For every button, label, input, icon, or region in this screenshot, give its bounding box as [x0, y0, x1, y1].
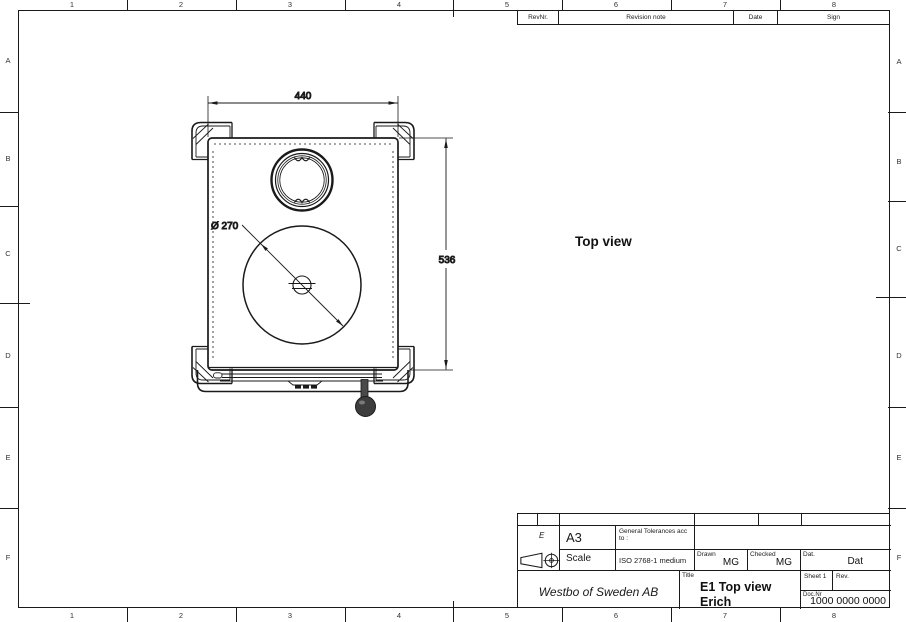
- door-knob: [356, 397, 376, 417]
- diameter-dimension-label: Ø 270: [211, 221, 239, 232]
- grid-row-label: F: [1, 553, 15, 563]
- title-cell: Title E1 Top view Erich: [680, 571, 801, 609]
- grid-tick: [127, 608, 128, 622]
- top-view-drawing: Ø 270 440 536: [180, 85, 470, 430]
- revision-sign-header: Sign: [778, 11, 889, 24]
- title-block: E A3 General Tolerances acc to : Scale I…: [517, 513, 890, 608]
- grid-tick: [0, 407, 18, 408]
- grid-row-label: F: [892, 553, 906, 563]
- grid-row-label: C: [892, 244, 906, 254]
- grid-row-label: D: [1, 351, 15, 361]
- ring-clip-bottom: [295, 199, 310, 202]
- docnr-value: 1000 0000 0000: [810, 595, 886, 607]
- grid-col-label: 1: [62, 611, 82, 621]
- grid-col-label: 5: [497, 0, 517, 10]
- grid-col-label: 2: [171, 0, 191, 10]
- tolerance-value: ISO 2768-1 medium: [616, 550, 695, 571]
- revision-date-header: Date: [734, 11, 778, 24]
- title-label: Title: [680, 571, 800, 580]
- depth-dimension-label: 536: [439, 255, 456, 266]
- checked-cell: Checked MG: [748, 550, 801, 571]
- grid-row-label: B: [1, 154, 15, 164]
- grid-tick: [236, 0, 237, 10]
- grid-tick: [780, 0, 781, 10]
- view-label: Top view: [575, 234, 695, 249]
- date-cell: Dat. Dat: [801, 550, 891, 571]
- first-angle-projection-icon: [518, 548, 562, 571]
- company-name: Westbo of Sweden AB: [518, 571, 680, 609]
- date-value: Dat: [847, 556, 863, 567]
- grid-tick: [671, 0, 672, 10]
- grid-col-label: 4: [389, 0, 409, 10]
- width-dimension-label: 440: [295, 91, 312, 102]
- grid-tick: [345, 0, 346, 10]
- grid-center-tick: [453, 601, 454, 622]
- projection-cell: E: [518, 526, 560, 571]
- grid-tick: [780, 608, 781, 622]
- grid-row-label: E: [892, 453, 906, 463]
- grid-col-label: 7: [715, 611, 735, 621]
- grid-center-tick: [453, 0, 454, 17]
- grid-row-label: B: [892, 157, 906, 167]
- grid-col-label: 5: [497, 611, 517, 621]
- grid-col-label: 3: [280, 611, 300, 621]
- drawn-cell: Drawn MG: [695, 550, 748, 571]
- titleblock-strip-cell: [518, 514, 538, 526]
- grid-col-label: 3: [280, 0, 300, 10]
- grid-col-label: 2: [171, 611, 191, 621]
- grid-col-label: 8: [824, 0, 844, 10]
- grid-row-label: A: [892, 57, 906, 67]
- rev-label: Rev.: [833, 571, 891, 591]
- grid-col-label: 4: [389, 611, 409, 621]
- grid-row-label: D: [892, 351, 906, 361]
- grid-center-tick: [0, 303, 30, 304]
- docnr-cell: Doc.Nr 1000 0000 0000: [801, 591, 891, 609]
- grid-tick: [888, 201, 906, 202]
- grid-tick: [127, 0, 128, 10]
- revision-note-header: Revision note: [559, 11, 734, 24]
- grid-row-label: A: [1, 56, 15, 66]
- scale-label: Scale: [560, 550, 616, 571]
- drawing-subtitle: Erich: [700, 595, 800, 610]
- zone-label: E: [539, 531, 544, 540]
- titleblock-strip-cell: [560, 514, 695, 526]
- checked-value: MG: [776, 557, 792, 568]
- drawing-sheet: 1 2 3 4 5 6 7 8 1 2 3 4 5 6 7 8 A B C D …: [0, 0, 906, 622]
- grid-tick: [888, 508, 906, 509]
- tolerance-label: General Tolerances acc to :: [616, 526, 695, 550]
- checked-label: Checked: [748, 550, 800, 559]
- grid-col-label: 6: [606, 0, 626, 10]
- grid-tick: [562, 608, 563, 622]
- grid-col-label: 8: [824, 611, 844, 621]
- drawing-title: E1 Top view: [700, 580, 800, 595]
- titleblock-strip-cell: [695, 514, 759, 526]
- grid-tick: [671, 608, 672, 622]
- titleblock-strip-cell: [802, 514, 891, 526]
- titleblock-empty-cell: [695, 526, 891, 550]
- grid-tick: [345, 608, 346, 622]
- grid-tick: [888, 407, 906, 408]
- grid-tick: [562, 0, 563, 10]
- grid-tick: [0, 112, 18, 113]
- revision-revnr-header: RevNr.: [518, 11, 559, 24]
- grid-tick: [236, 608, 237, 622]
- grid-col-label: 1: [62, 0, 82, 10]
- grid-row-label: C: [1, 249, 15, 259]
- paper-size: A3: [560, 526, 616, 550]
- grid-tick: [0, 508, 18, 509]
- titleblock-strip-cell: [759, 514, 802, 526]
- date-label: Dat.: [801, 550, 891, 559]
- drawn-value: MG: [723, 557, 739, 568]
- ring-clip-top: [295, 158, 310, 161]
- door-knob-stem: [361, 380, 368, 399]
- grid-col-label: 6: [606, 611, 626, 621]
- grid-row-label: E: [1, 453, 15, 463]
- titleblock-strip-cell: [538, 514, 560, 526]
- sheet-label: Sheet 1: [801, 571, 833, 591]
- revision-table: RevNr. Revision note Date Sign: [517, 10, 890, 25]
- grid-center-tick: [876, 297, 906, 298]
- grid-tick: [888, 112, 906, 113]
- grid-tick: [0, 206, 18, 207]
- drawn-label: Drawn: [695, 550, 747, 559]
- grid-col-label: 7: [715, 0, 735, 10]
